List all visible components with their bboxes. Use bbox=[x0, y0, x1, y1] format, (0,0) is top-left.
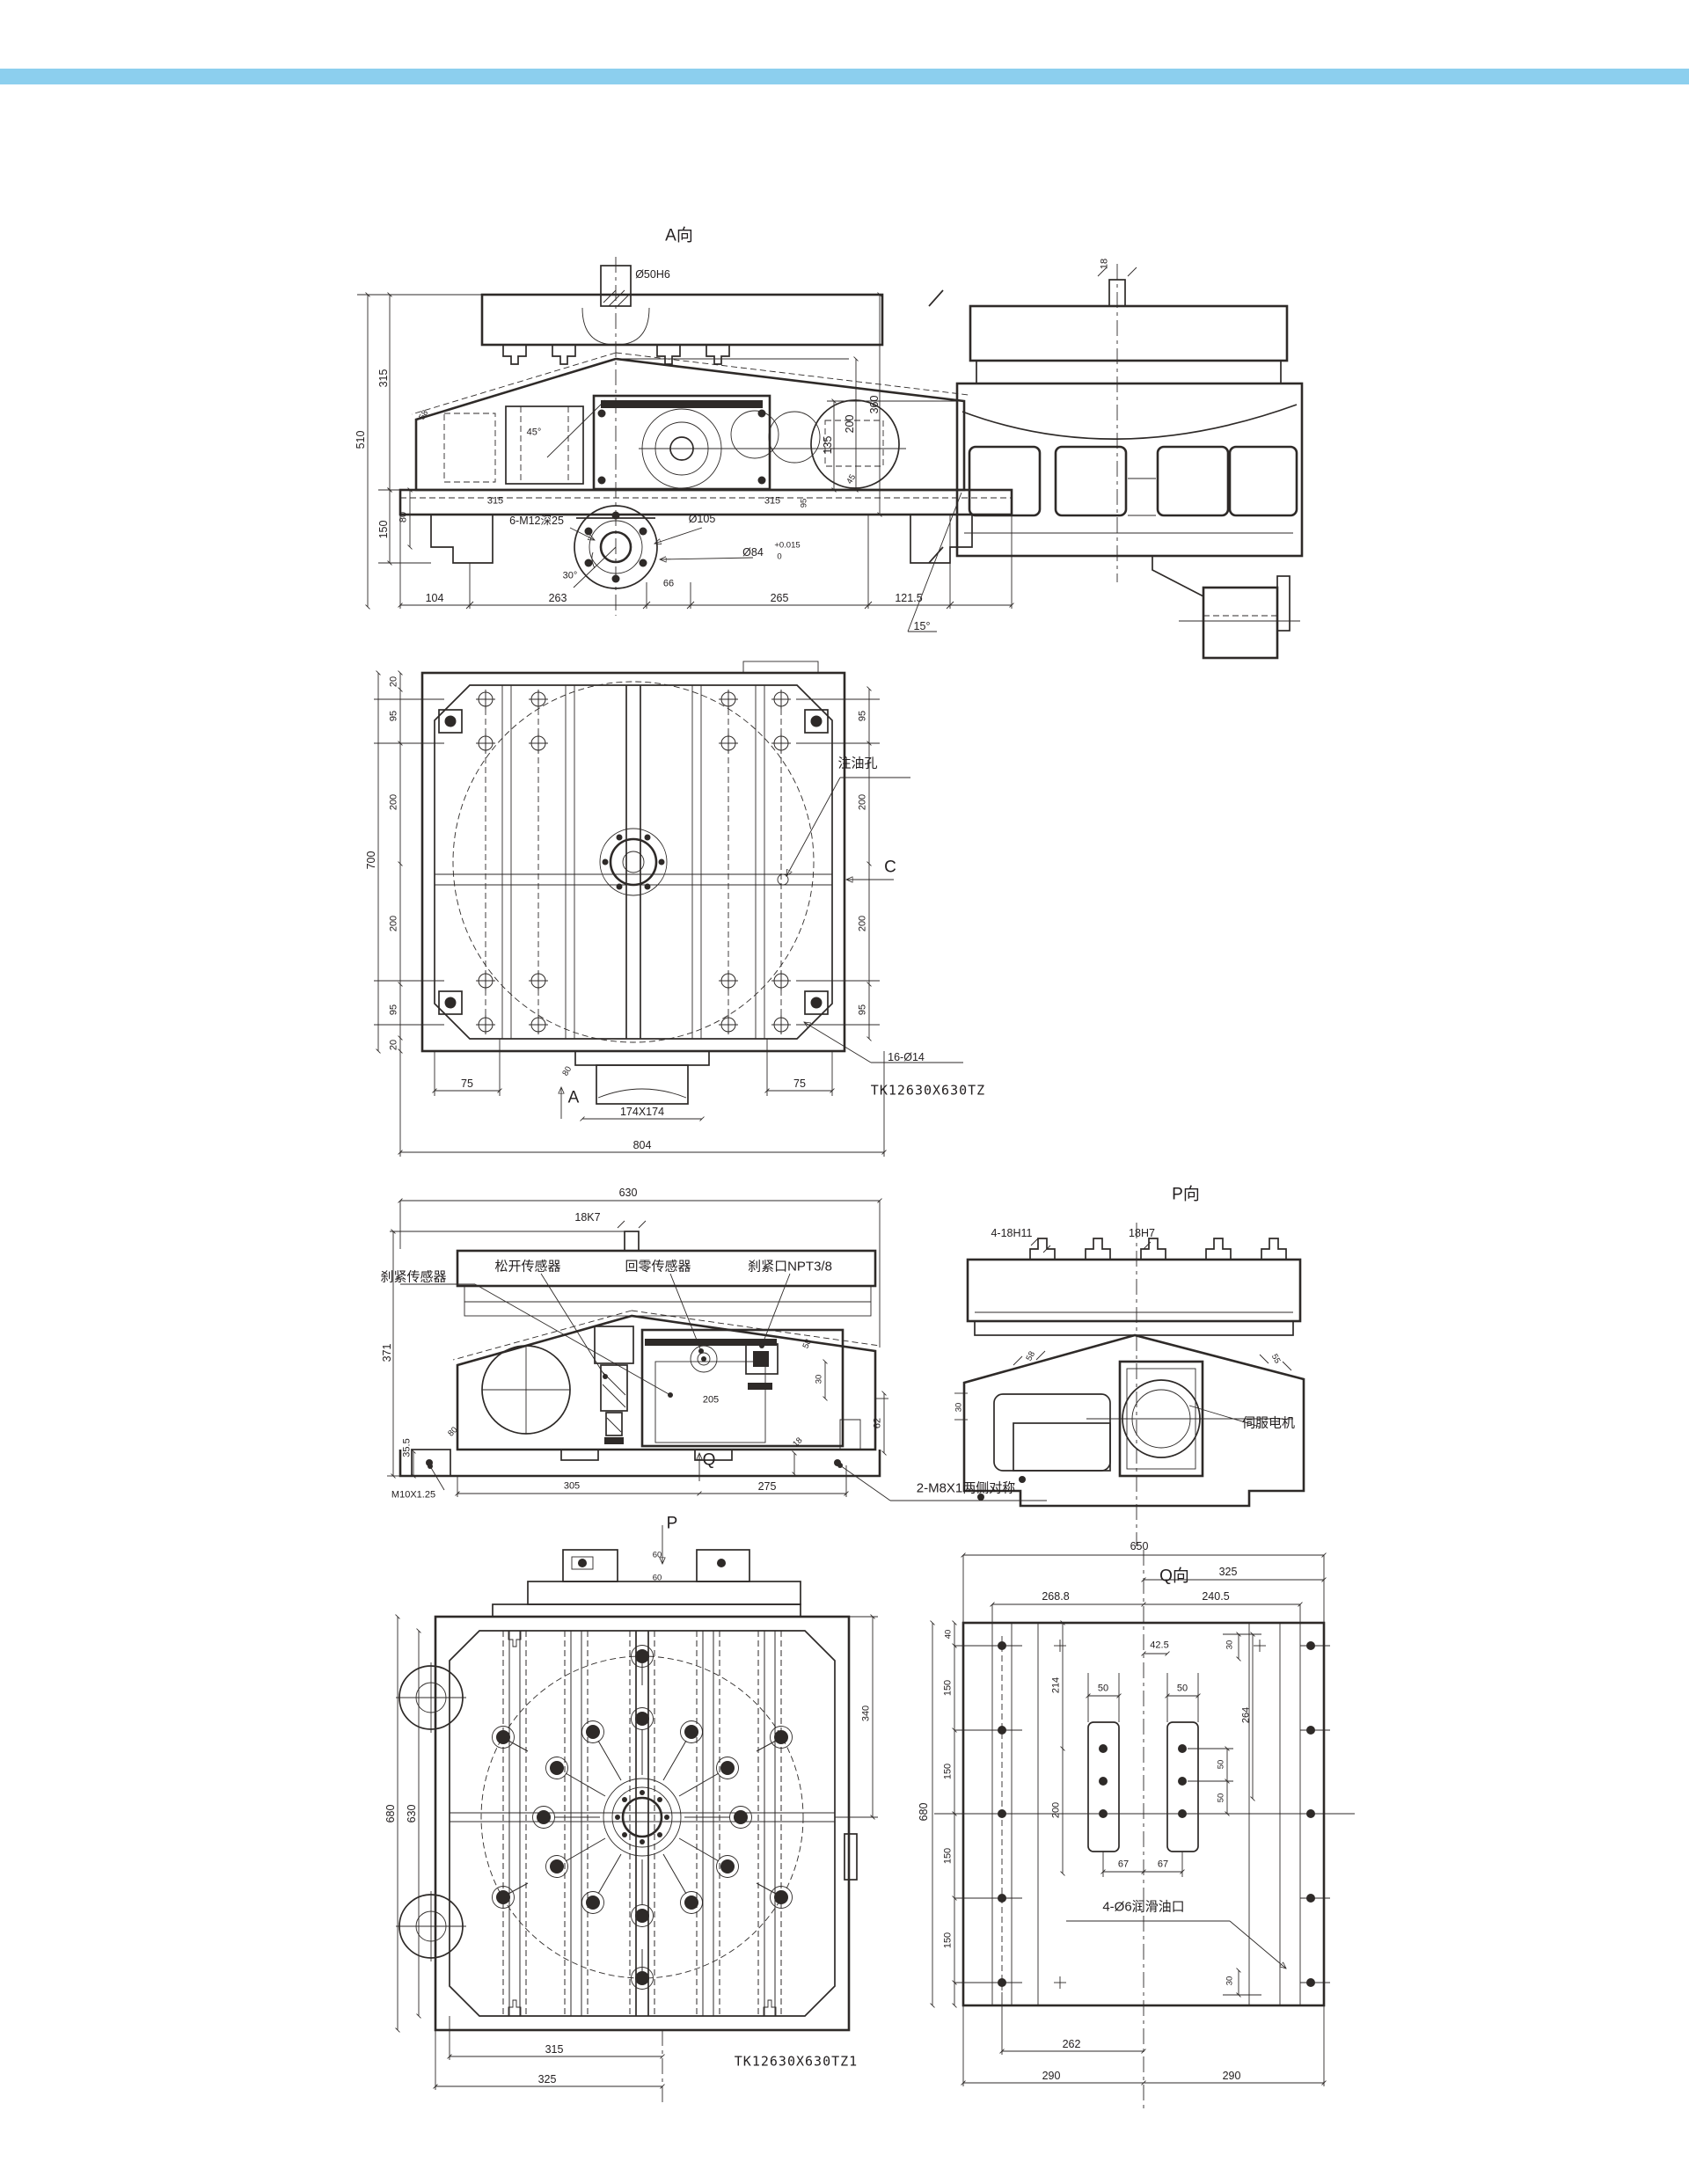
dim-30deg: 30° bbox=[563, 572, 578, 581]
dim-265: 265 bbox=[771, 593, 789, 604]
dim-268p8: 268.8 bbox=[1042, 1591, 1069, 1603]
dim-6xm12-depth25: 6-M12深25 bbox=[509, 515, 564, 527]
dim-150-4: 150 bbox=[944, 1932, 954, 1948]
dim-680-table: 680 bbox=[385, 1805, 397, 1823]
dim-264: 264 bbox=[1242, 1707, 1252, 1723]
view-q-title: Q向 bbox=[1159, 1568, 1189, 1585]
dim-50-slot-left: 50 bbox=[1098, 1684, 1108, 1694]
dim-80-foot: 80 bbox=[447, 1426, 459, 1438]
dim-240p5: 240.5 bbox=[1202, 1591, 1229, 1603]
section-p-mark: P bbox=[667, 1516, 678, 1532]
dim-200: 200 bbox=[844, 415, 856, 434]
dim-150: 150 bbox=[378, 521, 390, 539]
dim-804: 804 bbox=[633, 1140, 652, 1151]
label-4-d6-lube-ports: 4-Ø6润滑油口 bbox=[1102, 1901, 1184, 1914]
dim-315-b: 315 bbox=[764, 497, 780, 507]
dim-50-v1: 50 bbox=[1217, 1760, 1225, 1770]
section-a-mark: A bbox=[568, 1090, 580, 1107]
dim-275: 275 bbox=[758, 1481, 777, 1493]
dim-58-left-slope: 58 bbox=[1025, 1350, 1036, 1362]
dim-18h7: 18H7 bbox=[1129, 1228, 1155, 1239]
dim-200-r2: 200 bbox=[859, 916, 868, 931]
dim-75-left: 75 bbox=[461, 1078, 473, 1090]
dim-67-right: 67 bbox=[1158, 1860, 1168, 1870]
dim-340: 340 bbox=[862, 1706, 872, 1721]
dim-42p5: 42.5 bbox=[1150, 1641, 1168, 1651]
dim-315-left: 315 bbox=[378, 369, 390, 388]
dim-200-r1: 200 bbox=[859, 794, 868, 810]
dim-d84: Ø84 bbox=[742, 547, 764, 559]
dim-95-r1: 95 bbox=[859, 711, 868, 721]
dim-58-slope: 58 bbox=[801, 1338, 813, 1350]
dim-95: 95 bbox=[800, 499, 808, 508]
dim-35p5: 35.5 bbox=[403, 1438, 413, 1457]
dim-d84-tol-upper: +0.015 bbox=[774, 541, 800, 550]
drawing-code-tz1: TK12630X630TZ1 bbox=[735, 2056, 858, 2069]
dim-263: 263 bbox=[549, 593, 567, 604]
dim-30-bottom: 30 bbox=[1225, 1976, 1234, 1986]
dim-200-q: 200 bbox=[1052, 1802, 1062, 1818]
dim-262: 262 bbox=[1063, 2039, 1081, 2050]
dim-630-table: 630 bbox=[406, 1805, 418, 1823]
dim-290-right: 290 bbox=[1223, 2071, 1241, 2082]
dim-67-left: 67 bbox=[1118, 1860, 1129, 1870]
dim-150-1: 150 bbox=[944, 1680, 954, 1696]
dim-30-edge: 30 bbox=[954, 1403, 963, 1413]
section-q-mark: Q bbox=[703, 1452, 716, 1469]
dim-40: 40 bbox=[944, 1630, 953, 1640]
dim-60-b: 60 bbox=[653, 1574, 662, 1582]
dim-135: 135 bbox=[823, 436, 834, 455]
view-p-title: P向 bbox=[1172, 1187, 1200, 1203]
label-homing-sensor: 回零传感器 bbox=[625, 1260, 691, 1274]
dim-58: 58 bbox=[418, 409, 430, 421]
dim-104: 104 bbox=[426, 593, 444, 604]
dim-150-3: 150 bbox=[944, 1848, 954, 1864]
dim-d105: Ø105 bbox=[689, 514, 716, 525]
dim-45deg: 45° bbox=[527, 428, 542, 438]
dim-18-slot: 18 bbox=[1100, 259, 1110, 269]
dim-50-v2: 50 bbox=[1217, 1793, 1225, 1803]
dim-4-18h11: 4-18H11 bbox=[991, 1228, 1032, 1239]
dim-325-bottom: 325 bbox=[538, 2074, 557, 2085]
dim-510: 510 bbox=[355, 431, 367, 449]
dim-371: 371 bbox=[382, 1344, 393, 1362]
label-servo-motor: 伺服电机 bbox=[1242, 1417, 1295, 1430]
label-2m8x1-symmetric: 2-M8X1两侧对称 bbox=[917, 1482, 1016, 1495]
dim-15deg: 15° bbox=[914, 621, 931, 632]
dim-62: 62 bbox=[874, 1418, 883, 1428]
dim-95-l2: 95 bbox=[390, 1004, 399, 1015]
dim-m10x1p25: M10X1.25 bbox=[391, 1491, 435, 1501]
label-brake-port-npt: 刹紧口NPT3/8 bbox=[748, 1260, 832, 1274]
dim-290-left: 290 bbox=[1042, 2071, 1061, 2082]
dim-205: 205 bbox=[703, 1396, 719, 1406]
label-brake-sensor: 刹紧传感器 bbox=[380, 1271, 446, 1284]
dim-60-a: 60 bbox=[653, 1551, 662, 1559]
view-a-title: A向 bbox=[665, 228, 693, 245]
label-release-sensor: 松开传感器 bbox=[494, 1260, 560, 1274]
dim-95-r2: 95 bbox=[859, 1004, 868, 1015]
dim-bore-50h6: Ø50H6 bbox=[635, 269, 670, 281]
dim-305: 305 bbox=[564, 1482, 580, 1492]
dim-214: 214 bbox=[1052, 1677, 1062, 1693]
drawing-code-tz: TK12630X630TZ bbox=[871, 1085, 985, 1098]
dim-174x174: 174X174 bbox=[620, 1107, 664, 1118]
dim-630: 630 bbox=[619, 1187, 638, 1199]
label-oil-filler-hole: 注油孔 bbox=[837, 757, 877, 771]
dim-95-l1: 95 bbox=[390, 711, 399, 721]
dim-18-foot: 18 bbox=[792, 1436, 804, 1449]
drawing-page: A向Ø50H6510315588015045°6-M12深25Ø105Ø84+0… bbox=[0, 0, 1689, 2184]
dim-80-tab: 80 bbox=[561, 1065, 574, 1077]
dim-45-chamfer: 45 bbox=[845, 473, 858, 486]
dim-680-q: 680 bbox=[918, 1803, 930, 1822]
dim-650: 650 bbox=[1130, 1541, 1149, 1552]
dim-315-a: 315 bbox=[487, 497, 503, 507]
section-c-mark: C bbox=[884, 859, 896, 876]
dim-55-right-slope: 55 bbox=[1269, 1353, 1281, 1365]
labels-layer: A向Ø50H6510315588015045°6-M12深25Ø105Ø84+0… bbox=[0, 0, 1689, 2184]
dim-d84-tol-lower: 0 bbox=[777, 552, 781, 561]
dim-20-top: 20 bbox=[390, 676, 399, 687]
dim-360: 360 bbox=[869, 396, 881, 414]
dim-200-l2: 200 bbox=[390, 916, 399, 931]
dim-18k7: 18K7 bbox=[574, 1212, 600, 1223]
dim-150-2: 150 bbox=[944, 1764, 954, 1779]
dim-50-slot-right: 50 bbox=[1177, 1684, 1188, 1694]
dim-700: 700 bbox=[366, 851, 377, 870]
dim-66: 66 bbox=[663, 580, 674, 589]
dim-30-step: 30 bbox=[815, 1375, 823, 1384]
dim-80: 80 bbox=[399, 512, 409, 522]
dim-30-top: 30 bbox=[1225, 1640, 1234, 1650]
dim-121p5: 121.5 bbox=[895, 593, 922, 604]
dim-200-l1: 200 bbox=[390, 794, 399, 810]
dim-315-bottom: 315 bbox=[545, 2044, 564, 2056]
dim-20-bottom: 20 bbox=[390, 1040, 399, 1050]
dim-16-d14: 16-Ø14 bbox=[888, 1052, 925, 1063]
dim-325: 325 bbox=[1219, 1567, 1238, 1578]
dim-75-right: 75 bbox=[793, 1078, 806, 1090]
